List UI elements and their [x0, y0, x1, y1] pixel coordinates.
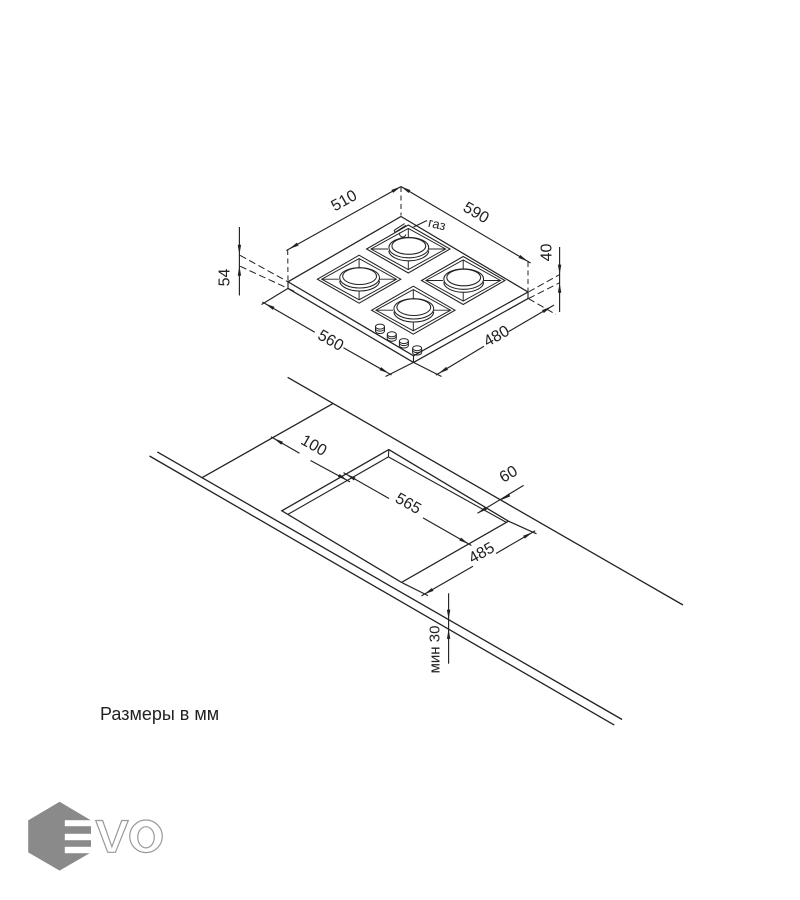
svg-text:560: 560 [315, 327, 347, 355]
svg-text:565: 565 [392, 490, 424, 518]
svg-text:54: 54 [217, 269, 234, 287]
svg-text:480: 480 [481, 323, 513, 351]
svg-text:60: 60 [497, 463, 521, 487]
svg-text:40: 40 [539, 244, 556, 262]
svg-text:590: 590 [460, 199, 492, 227]
svg-text:Размеры в мм: Размеры в мм [100, 704, 219, 724]
svg-text:485: 485 [466, 539, 498, 567]
svg-text:510: 510 [328, 187, 360, 215]
svg-text:мин 30: мин 30 [427, 626, 444, 674]
svg-text:100: 100 [298, 432, 330, 460]
svg-text:газ: газ [427, 215, 447, 234]
